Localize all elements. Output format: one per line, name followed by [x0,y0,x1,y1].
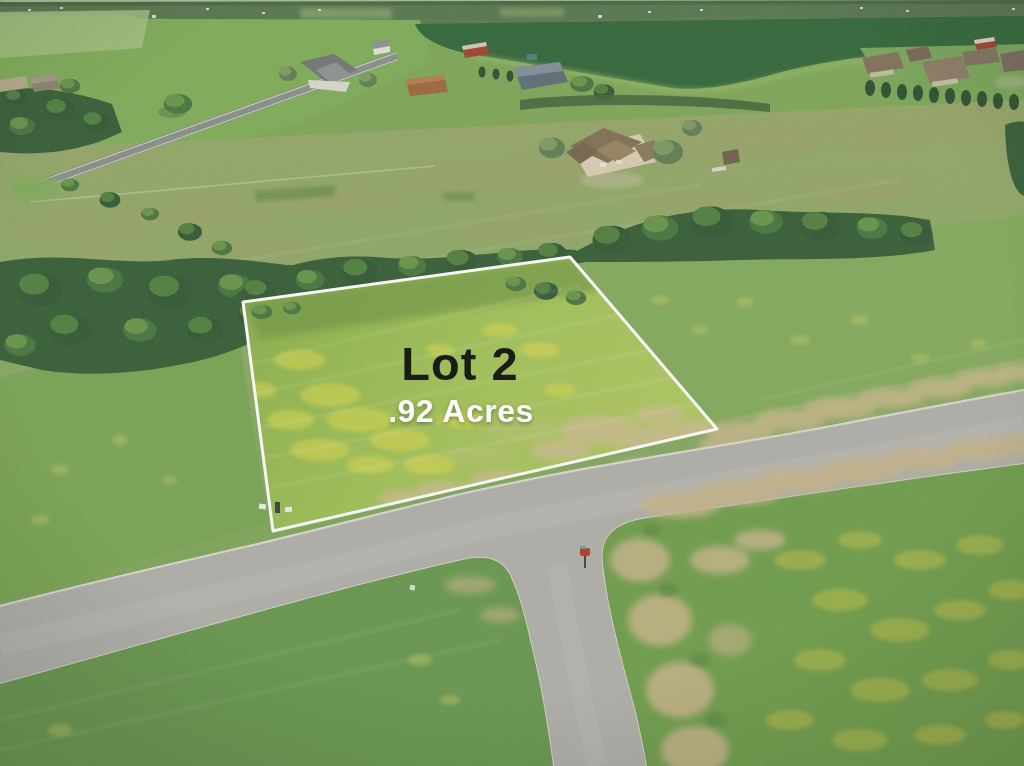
aerial-lot-photo: Lot 2 .92 Acres [0,0,1024,766]
lot-acreage-label: .92 Acres [331,395,591,427]
lot-name-label: Lot 2 [330,340,590,387]
